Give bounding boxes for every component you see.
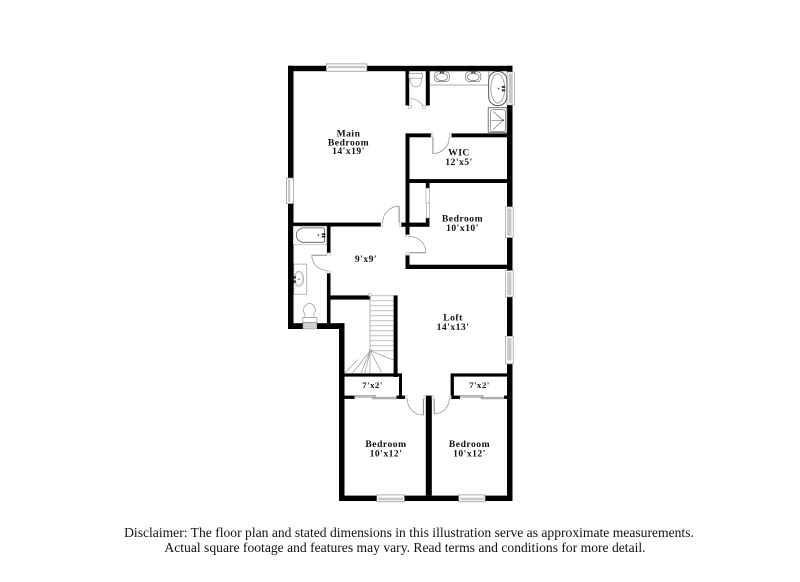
svg-text:7'x2': 7'x2' bbox=[469, 380, 490, 390]
svg-text:14'x19': 14'x19' bbox=[332, 146, 365, 157]
svg-text:Actual square footage and feat: Actual square footage and features may v… bbox=[164, 540, 645, 555]
svg-text:10'x10': 10'x10' bbox=[446, 223, 479, 234]
svg-text:10'x12': 10'x12' bbox=[453, 449, 486, 460]
svg-text:9'x9': 9'x9' bbox=[355, 254, 377, 265]
svg-text:10'x12': 10'x12' bbox=[370, 449, 403, 460]
svg-text:Disclaimer: The floor plan and: Disclaimer: The floor plan and stated di… bbox=[124, 525, 694, 540]
svg-text:14'x13': 14'x13' bbox=[437, 322, 470, 333]
svg-text:7'x2': 7'x2' bbox=[362, 380, 383, 390]
svg-text:12'x5': 12'x5' bbox=[445, 157, 473, 168]
